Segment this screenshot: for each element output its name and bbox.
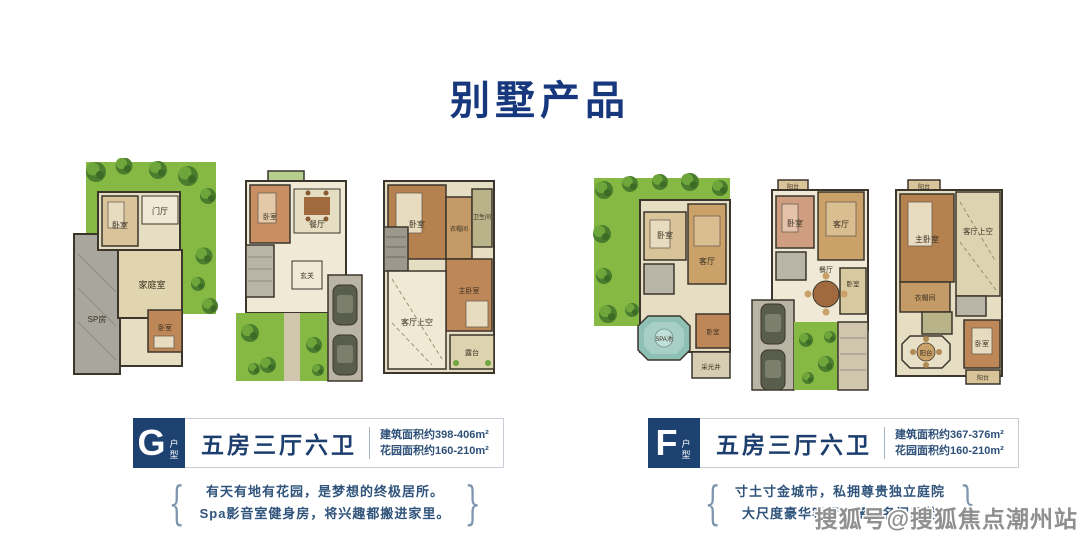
unit-suffix: 户型 xyxy=(168,439,181,461)
unit-areas: 建筑面积约398-406m² 花园面积约160-210m² xyxy=(370,427,503,460)
area-line: 花园面积约160-210m² xyxy=(380,443,489,460)
unit-headline: 五房三厅六卫 xyxy=(185,426,369,460)
floorplan-f-1-svg: 卧室 客厅 SPA池 卧室 采光井 xyxy=(588,172,736,390)
room-label: 衣帽间 xyxy=(450,225,468,233)
room-label: 采光井 xyxy=(701,362,721,371)
sohu-watermark: 搜狐号@搜狐焦点潮州站 xyxy=(815,500,1078,534)
room-label: 卧室 xyxy=(847,279,861,288)
unit-headline: 五房三厅六卫 xyxy=(700,426,884,460)
room-label: 卧室 xyxy=(707,327,721,336)
decorative-bracket-left: { xyxy=(704,480,720,526)
room-label: 卧室 xyxy=(787,218,803,228)
room-label: 卧室 xyxy=(263,212,277,221)
room-label: 餐厅 xyxy=(819,265,833,274)
floorplan-g-3-svg: 卧室 卫生间 衣帽间 主卧室 客厅上空 露台 xyxy=(372,167,500,384)
room-label: 卧室 xyxy=(657,230,673,240)
building xyxy=(638,200,730,378)
unit-f-info-bar: F 户型 五房三厅六卫 建筑面积约367-376m² 花园面积约160-210m… xyxy=(648,418,1019,468)
floorplan-f-2: 阳台 卧室 客厅 餐厅 卧室 xyxy=(748,172,876,394)
unit-group-g: 卧室 门厅 家庭室 SP房 卧室 xyxy=(55,150,520,535)
unit-g-desc-text: 有天有地有花园，是梦想的终极居所。 Spa影音室健身房，将兴趣都搬进家里。 xyxy=(200,481,451,525)
decorative-bracket-right: } xyxy=(465,480,481,526)
room-label: 卧室 xyxy=(158,323,172,332)
area-line: 建筑面积约367-376m² xyxy=(895,427,1004,444)
parking xyxy=(752,300,794,390)
unit-g-info-box: 五房三厅六卫 建筑面积约398-406m² 花园面积约160-210m² xyxy=(185,418,504,468)
room-label: 门厅 xyxy=(152,206,168,216)
floorplan-f-3: 阳台 主卧室 客厅上空 衣帽间 阳台 卧室 阳台 xyxy=(882,172,1010,394)
unit-letter: G xyxy=(137,425,165,461)
unit-f-badge: F 户型 xyxy=(648,418,700,468)
unit-f-info-box: 五房三厅六卫 建筑面积约367-376m² 花园面积约160-210m² xyxy=(700,418,1019,468)
area-line: 建筑面积约398-406m² xyxy=(380,427,489,444)
unit-suffix: 户型 xyxy=(680,439,693,461)
room-label: 卫生间 xyxy=(473,213,491,221)
room-label: 客厅 xyxy=(699,256,715,266)
building xyxy=(896,190,1002,384)
room-label: 阳台 xyxy=(977,374,989,382)
room-label: 阳台 xyxy=(918,183,930,191)
room-label: SP房 xyxy=(88,314,107,324)
floorplan-g-2: 卧室 餐厅 玄关 xyxy=(228,163,366,388)
floorplan-f-3-svg: 阳台 主卧室 客厅上空 衣帽间 阳台 卧室 阳台 xyxy=(882,172,1010,394)
driveway xyxy=(328,275,362,381)
floorplan-g-1-svg: 卧室 门厅 家庭室 SP房 卧室 xyxy=(62,158,222,390)
room-label: 客厅 xyxy=(833,219,849,229)
floorplan-f-1: 卧室 客厅 SPA池 卧室 采光井 xyxy=(588,172,736,390)
decorative-bracket-left: { xyxy=(169,480,185,526)
room-label: 阳台 xyxy=(920,348,933,357)
room-label: 衣帽间 xyxy=(915,293,936,302)
desc-line: Spa影音室健身房，将兴趣都搬进家里。 xyxy=(200,503,451,525)
page-title: 别墅产品 xyxy=(0,68,1080,126)
building xyxy=(384,181,494,373)
room-label: SPA池 xyxy=(655,335,673,343)
room-label: 露台 xyxy=(465,348,479,357)
floorplan-f-2-svg: 阳台 卧室 客厅 餐厅 卧室 xyxy=(748,172,876,394)
room-label: 卧室 xyxy=(112,220,128,230)
unit-group-f: 卧室 客厅 SPA池 卧室 采光井 xyxy=(580,150,1045,535)
unit-letter: F xyxy=(656,425,678,461)
garden-area xyxy=(236,313,328,381)
room-label: 客厅上空 xyxy=(963,226,993,236)
room-label: 玄关 xyxy=(300,271,314,280)
room-label: 主卧室 xyxy=(459,286,480,295)
unit-g-info-bar: G 户型 五房三厅六卫 建筑面积约398-406m² 花园面积约160-210m… xyxy=(133,418,504,468)
floorplan-g-3: 卧室 卫生间 衣帽间 主卧室 客厅上空 露台 xyxy=(372,167,500,384)
room-label: 卧室 xyxy=(409,219,425,229)
unit-areas: 建筑面积约367-376m² 花园面积约160-210m² xyxy=(885,427,1018,460)
unit-g-description: { 有天有地有花园，是梦想的终极居所。 Spa影音室健身房，将兴趣都搬进家里。 … xyxy=(180,480,470,526)
desc-line: 有天有地有花园，是梦想的终极居所。 xyxy=(200,481,451,503)
room-label: 卧室 xyxy=(975,339,989,348)
room-label: 家庭室 xyxy=(138,279,165,290)
page: 别墅产品 xyxy=(0,0,1080,541)
area-line: 花园面积约160-210m² xyxy=(895,443,1004,460)
room-label: 客厅上空 xyxy=(401,317,433,327)
floorplan-g-1: 卧室 门厅 家庭室 SP房 卧室 xyxy=(62,158,222,390)
garden-area xyxy=(794,322,868,390)
unit-g-badge: G 户型 xyxy=(133,418,185,468)
room-label: 阳台 xyxy=(787,183,799,191)
room-label: 餐厅 xyxy=(309,220,325,229)
floorplan-g-2-svg: 卧室 餐厅 玄关 xyxy=(228,163,366,388)
room-label: 主卧室 xyxy=(915,234,939,244)
